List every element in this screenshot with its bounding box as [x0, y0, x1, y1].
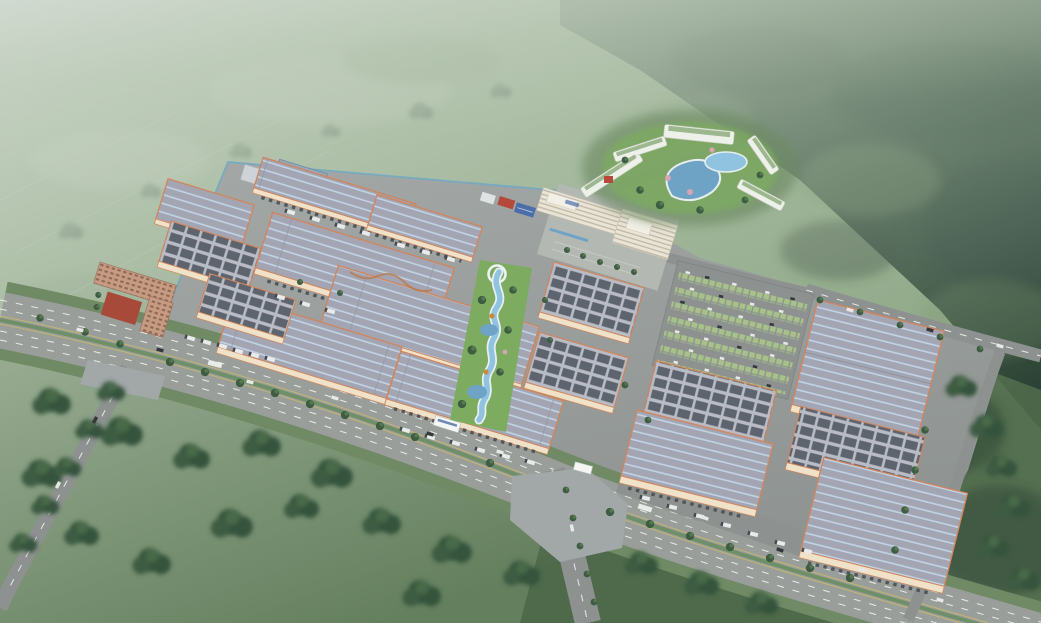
park-pond-1: [480, 324, 498, 336]
park-pond-2: [467, 385, 487, 399]
sky-glare: [0, 0, 1041, 140]
resort-pond-upper: [705, 152, 747, 172]
aerial-rendering-industrial-park: [0, 0, 1041, 623]
scene-canvas: [0, 0, 1041, 623]
resort-cottage: [604, 176, 613, 183]
